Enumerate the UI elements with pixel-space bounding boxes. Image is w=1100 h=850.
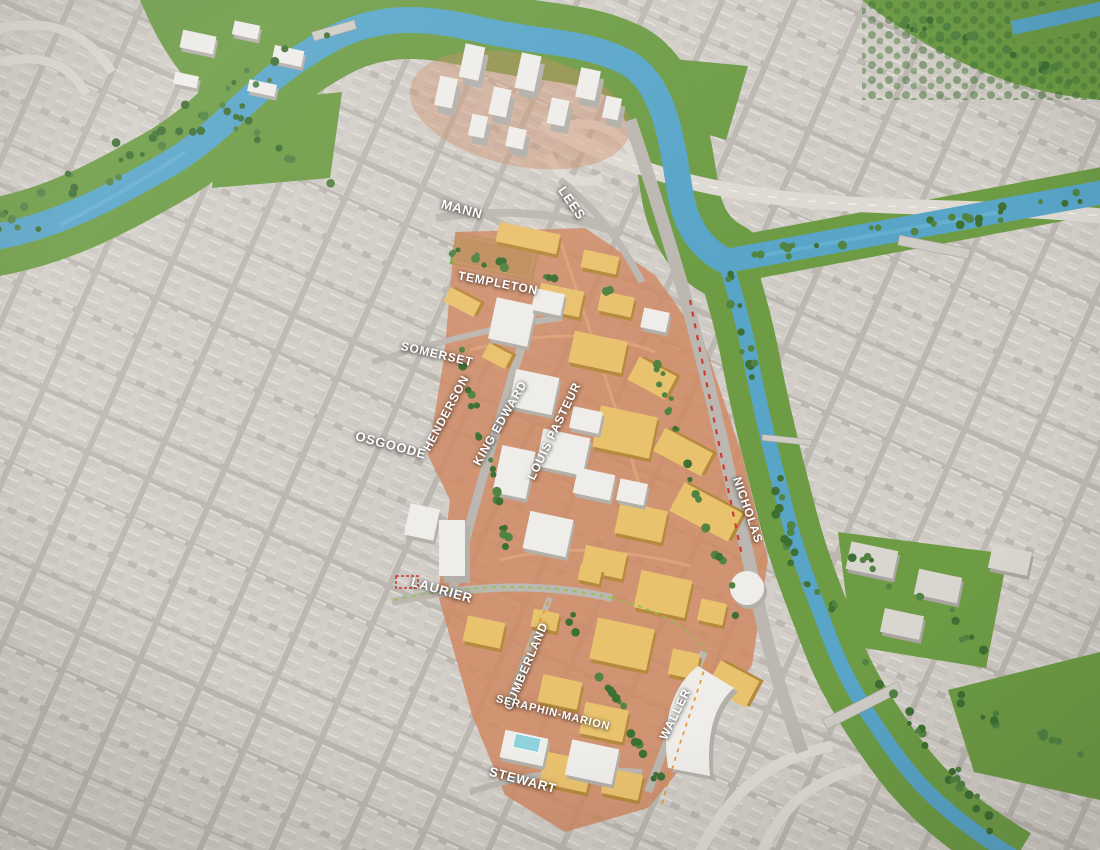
- map-canvas: MANNLEESTEMPLETONSOMERSETHENDERSONOSGOOD…: [0, 0, 1100, 850]
